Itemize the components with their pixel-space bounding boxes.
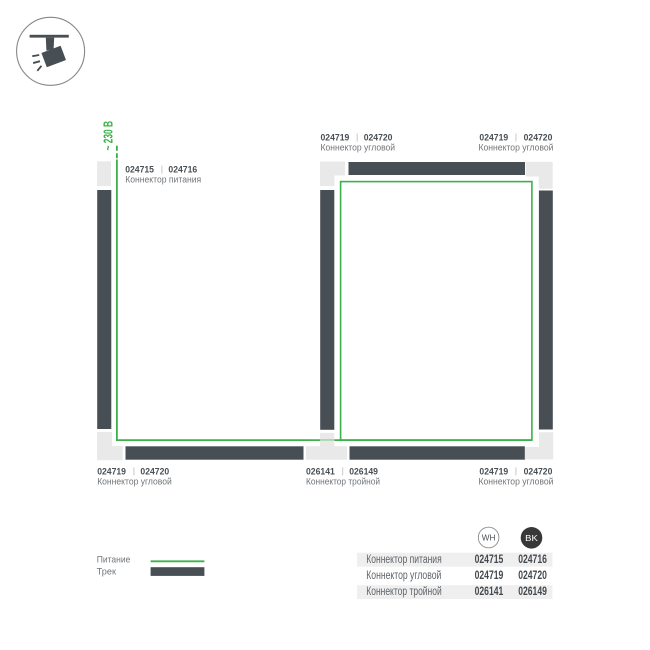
svg-text:024716: 024716 [518,553,547,566]
svg-text:~ 230 В: ~ 230 В [101,121,116,151]
svg-text:Коннектор тройной: Коннектор тройной [306,476,380,486]
svg-text:Коннектор угловой: Коннектор угловой [479,476,554,486]
svg-text:Питание: Питание [97,554,131,564]
svg-text:WH: WH [482,533,496,543]
svg-text:Коннектор угловой: Коннектор угловой [97,476,172,486]
svg-text:024719: 024719 [479,133,508,143]
svg-text:026149: 026149 [349,466,378,476]
svg-text:024720: 024720 [524,466,553,476]
svg-text:024720: 024720 [524,133,553,143]
svg-text:Коннектор угловой: Коннектор угловой [479,142,554,152]
svg-text:024716: 024716 [168,165,197,175]
svg-text:024720: 024720 [518,569,547,582]
svg-text:Коннектор угловой: Коннектор угловой [366,570,441,582]
svg-text:Коннектор питания: Коннектор питания [366,554,441,566]
svg-text:024720: 024720 [140,466,169,476]
svg-text:024719: 024719 [479,466,508,476]
svg-text:024719: 024719 [321,133,350,143]
svg-text:BK: BK [525,533,538,543]
svg-text:Трек: Трек [97,566,116,576]
svg-text:024715: 024715 [125,165,154,175]
svg-text:026149: 026149 [518,585,547,598]
svg-text:Коннектор угловой: Коннектор угловой [321,142,396,152]
svg-text:026141: 026141 [306,466,335,476]
svg-text:024719: 024719 [475,569,504,582]
svg-text:Коннектор тройной: Коннектор тройной [366,586,441,598]
svg-text:024715: 024715 [475,553,504,566]
svg-text:024719: 024719 [97,466,126,476]
svg-text:Коннектор питания: Коннектор питания [125,174,201,184]
svg-text:026141: 026141 [475,585,504,598]
svg-text:024720: 024720 [364,133,393,143]
